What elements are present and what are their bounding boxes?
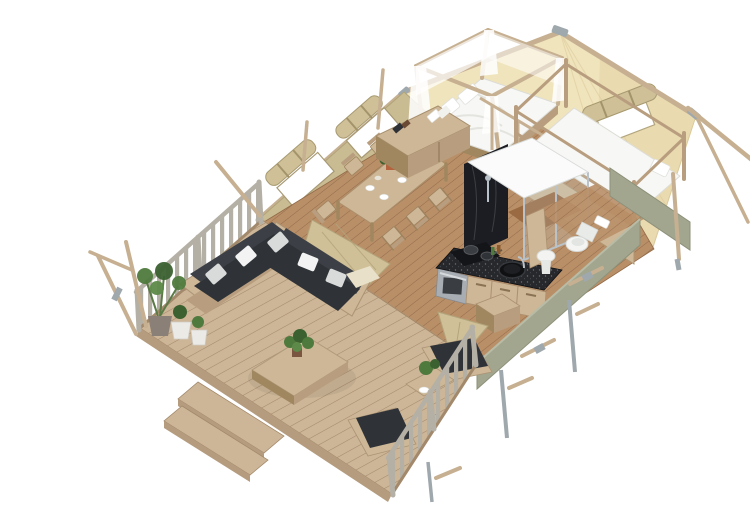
planter-pot [148,316,172,336]
dish [419,387,429,393]
steel-post [569,300,575,372]
steel-post [501,370,507,438]
steel-sleeve [583,274,592,279]
floorplan-render [40,16,750,516]
bottle [491,247,495,255]
cooking-pot [464,246,478,255]
planter-greenery [430,359,440,369]
render-canvas [40,16,750,516]
steel-sleeve [535,346,544,351]
ground-stake [436,468,460,478]
ground-stake [577,304,598,314]
steel-post [428,462,432,502]
ground-stake [509,378,532,388]
white-pot [191,330,207,345]
sink-basin [504,264,521,274]
steel-foot [677,259,679,270]
white-pot [171,322,191,339]
bottle [497,245,501,254]
guy-pole [90,252,132,270]
oven-window [442,277,462,294]
